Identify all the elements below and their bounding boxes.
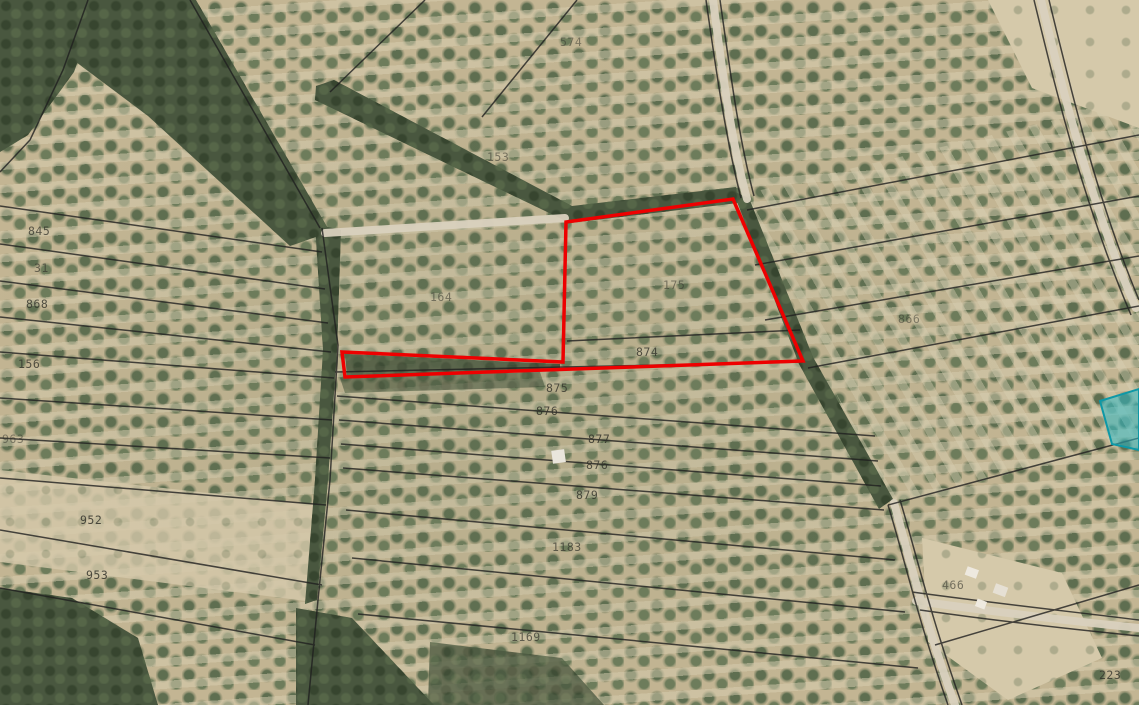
parcel-label-953: 953 — [86, 569, 108, 581]
parcel-label-952: 952 — [80, 514, 102, 526]
parcel-label-156: 156 — [18, 358, 40, 370]
map-canvas: 8453186815696395295315357416417587487587… — [0, 0, 1139, 705]
parcel-label-876: 876 — [536, 405, 558, 417]
parcel-label-1169: 1169 — [511, 631, 541, 643]
parcel-labels-layer: 8453186815696395295315357416417587487587… — [0, 0, 1139, 705]
parcel-label-466: 466 — [942, 579, 964, 591]
parcel-label-879: 879 — [576, 489, 598, 501]
parcel-label-876: 876 — [586, 459, 608, 471]
parcel-label-874: 874 — [636, 346, 658, 358]
parcel-label-153: 153 — [487, 151, 509, 163]
parcel-label-963: 963 — [2, 433, 24, 445]
parcel-label-875: 875 — [546, 382, 568, 394]
parcel-label-175: 175 — [663, 279, 685, 291]
parcel-label-1183: 1183 — [552, 541, 582, 553]
parcel-label-164: 164 — [430, 291, 452, 303]
parcel-label-223: 223 — [1099, 669, 1121, 681]
parcel-label-845: 845 — [28, 225, 50, 237]
parcel-label-866: 866 — [898, 313, 920, 325]
parcel-label-31: 31 — [34, 262, 49, 274]
parcel-label-868: 868 — [26, 298, 48, 310]
parcel-label-877: 877 — [588, 433, 610, 445]
parcel-label-574: 574 — [560, 36, 582, 48]
